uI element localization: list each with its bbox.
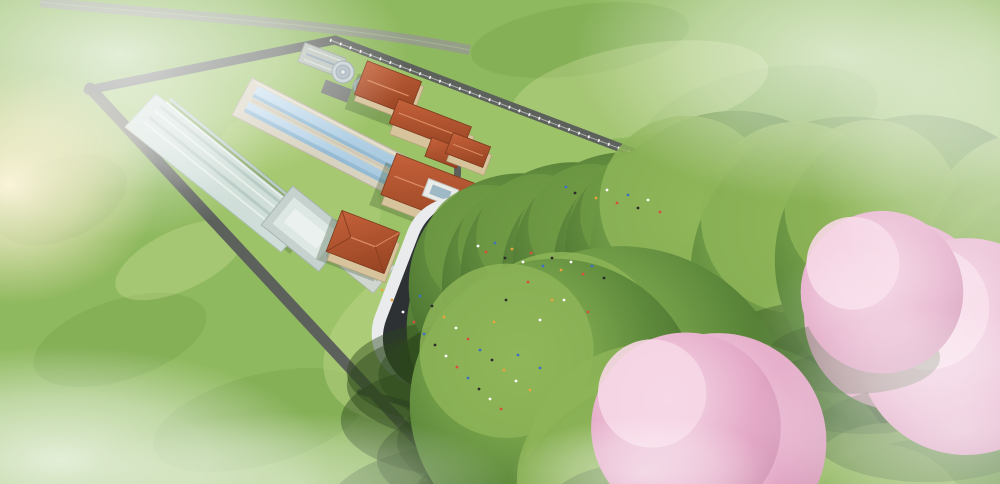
- aerial-rendering: [0, 0, 1000, 484]
- scene-canvas: [0, 0, 1000, 484]
